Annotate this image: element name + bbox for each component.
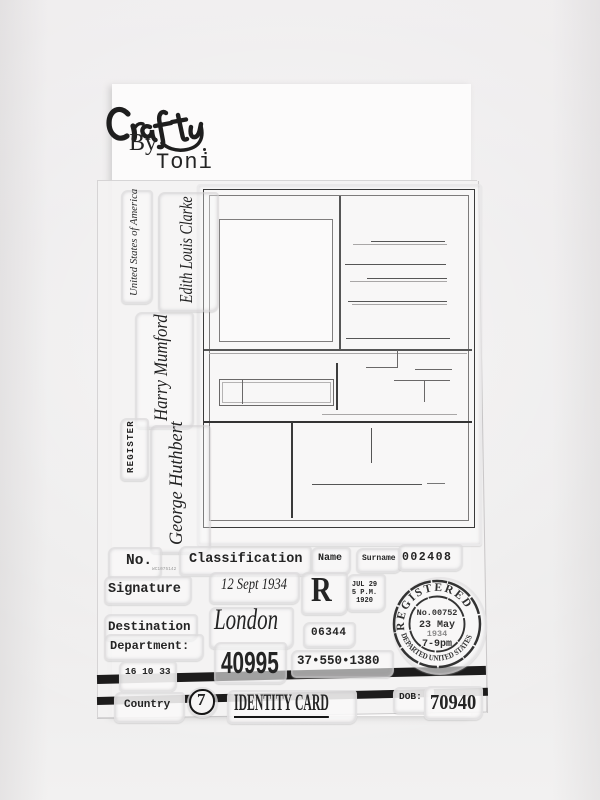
svg-text:No.00752: No.00752 xyxy=(417,608,458,618)
svg-text:7-9pm: 7-9pm xyxy=(422,639,452,650)
svg-text:1934: 1934 xyxy=(427,629,447,639)
